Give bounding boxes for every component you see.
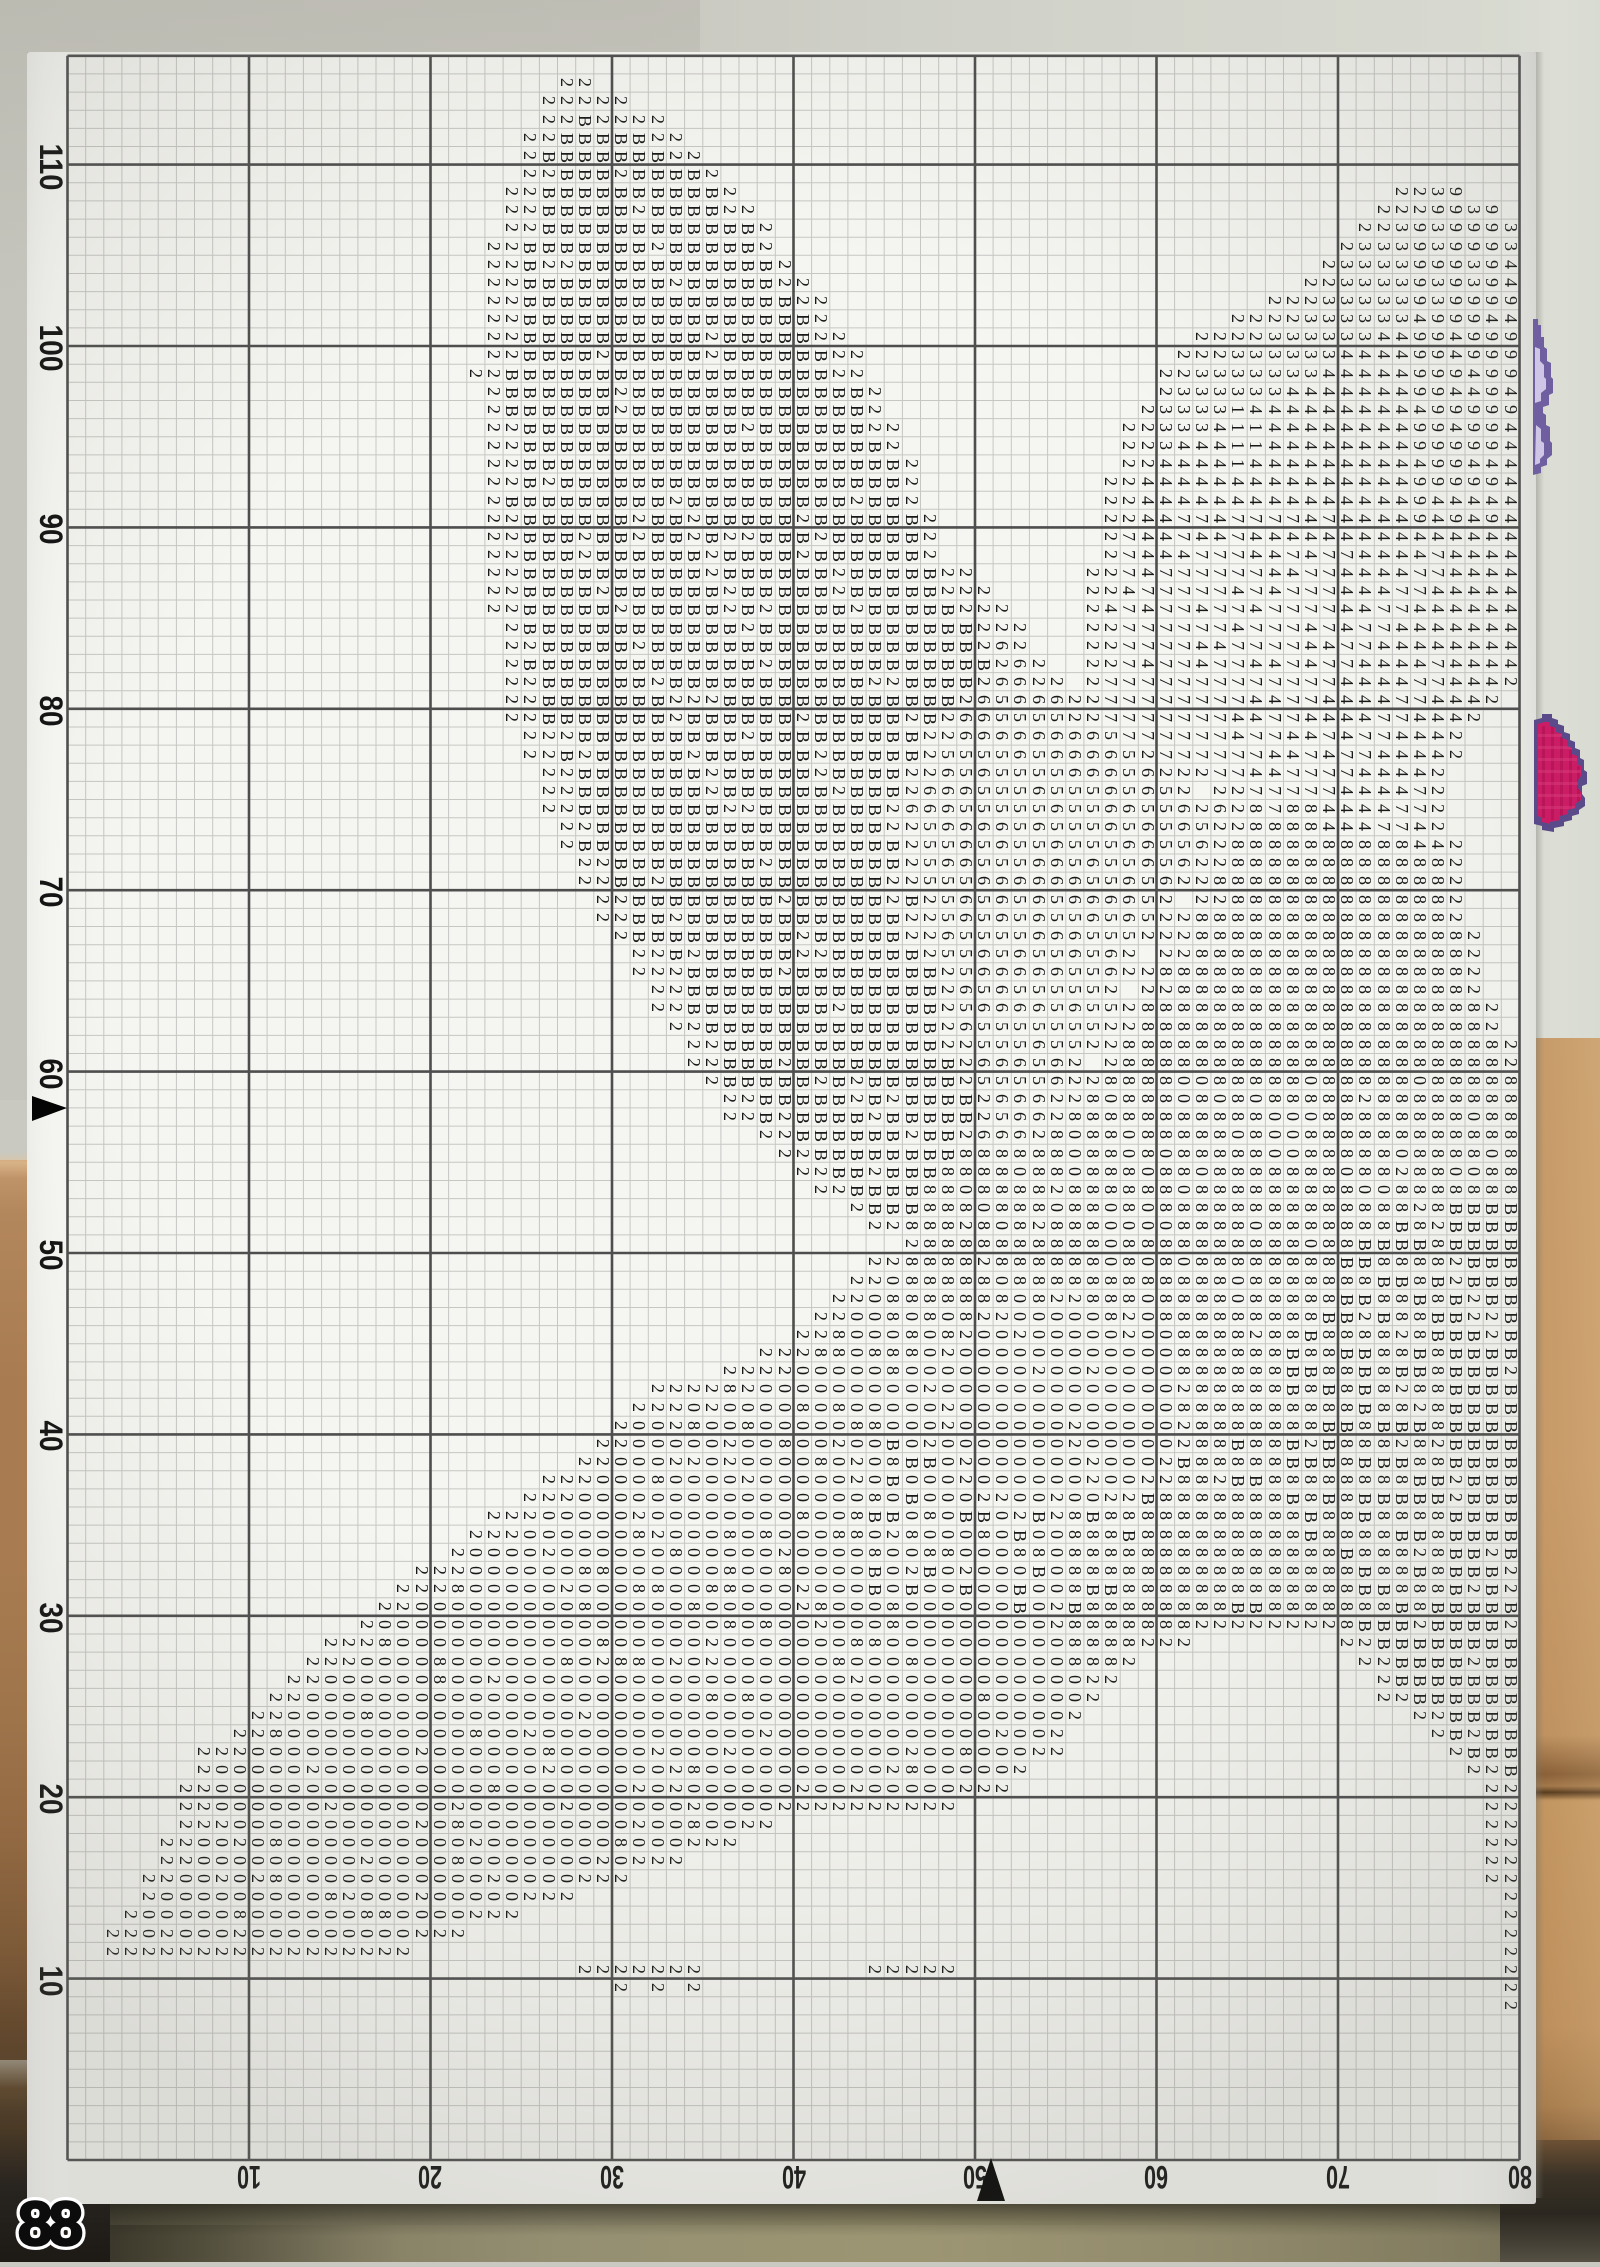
svg-text:88: 88: [18, 2190, 81, 2259]
